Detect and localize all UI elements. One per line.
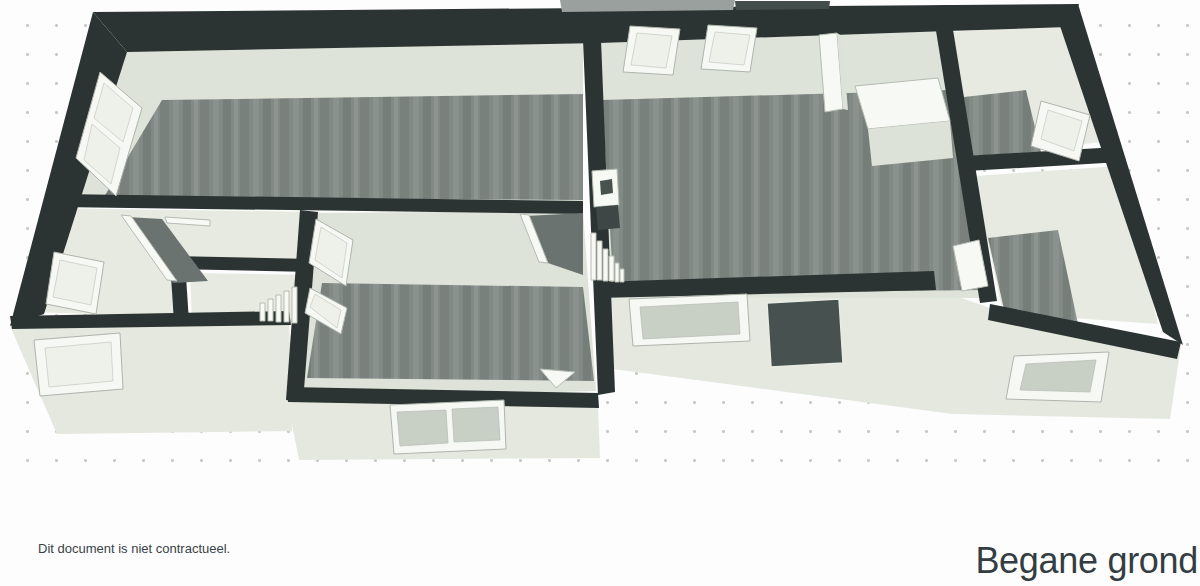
cabinet-top: [855, 78, 950, 129]
wood-floor-living-left: [104, 94, 583, 200]
stair-step: [609, 256, 614, 281]
wood-floor-middle: [307, 283, 594, 381]
disclaimer-text: Dit document is niet contractueel.: [38, 541, 230, 556]
window-bottom-left-room-pane: [53, 260, 97, 305]
facade-window-middle-pane-right: [452, 407, 500, 442]
facade-window-main-pane: [640, 302, 740, 339]
stair-step: [620, 269, 624, 282]
stair-step: [276, 295, 281, 322]
floorplan-3d-render: [0, 0, 1200, 586]
stair-step: [268, 299, 273, 321]
toilet-seat: [600, 179, 613, 195]
stair-step: [284, 291, 289, 322]
floorplan-document: Dit document is niet contractueel. Began…: [0, 0, 1200, 586]
stair-step: [292, 287, 297, 323]
stair-step: [260, 303, 265, 321]
stair-step: [597, 241, 602, 280]
wall-north-highlight: [560, 0, 735, 12]
skylight-window-2-pane: [709, 32, 750, 65]
facade-window-middle-pane-left: [397, 410, 448, 446]
wall-north-light-segment: [735, 1, 830, 10]
skylight-window-1-pane: [631, 33, 672, 68]
floor-title: Begane grond: [975, 540, 1198, 582]
dark-mat: [596, 205, 620, 230]
stair-step: [591, 233, 596, 280]
facade-window-right-pane: [1020, 360, 1096, 392]
stair-step: [603, 249, 608, 281]
facade-window-left-pane: [45, 342, 113, 387]
front-door: [767, 299, 843, 367]
stair-step: [615, 263, 619, 282]
